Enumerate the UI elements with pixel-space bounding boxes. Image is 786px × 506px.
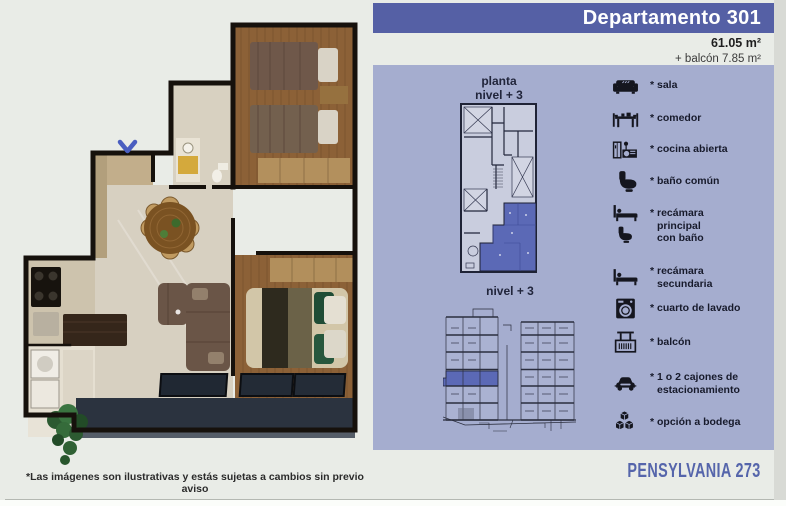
legend-item: * comedor xyxy=(609,106,701,131)
legend-item-label: * cocina abierta xyxy=(650,143,728,156)
legend-item: * cuarto de lavado xyxy=(609,296,740,321)
right-margin xyxy=(774,0,786,506)
legend-item-label: * balcón xyxy=(650,336,691,349)
legend-item-label: * 1 o 2 cajones de estacionamiento xyxy=(650,371,740,396)
floor-plan-label: planta nivel + 3 xyxy=(419,74,579,103)
bed-with-bath-icon xyxy=(609,203,641,249)
building-floor-plan-thumbnail xyxy=(460,103,537,273)
page-title: Departamento 301 xyxy=(583,7,761,30)
legend-item-label: * recámara secundaria xyxy=(650,265,712,290)
info-panel: planta nivel + 3 nivel + 3 xyxy=(373,65,774,450)
legend-item: * balcón xyxy=(609,330,691,355)
area-block: 61.05 m² + balcón 7.85 m² xyxy=(373,36,774,66)
legend-item-label: * opción a bodega xyxy=(650,416,740,429)
header-bar: Departamento 301 xyxy=(373,3,774,33)
storage-boxes-icon xyxy=(609,410,641,435)
balcony-area: + balcón 7.85 m² xyxy=(373,52,761,66)
bottom-margin xyxy=(0,500,786,506)
legend-item: * sala xyxy=(609,73,677,98)
sofa-icon xyxy=(609,73,641,98)
legend-item: * recámara principal con baño xyxy=(609,203,704,249)
dining-table-icon xyxy=(609,106,641,131)
apartment-floor-plan-render xyxy=(18,20,360,465)
legend-item-label: * sala xyxy=(650,79,677,92)
legend-item-label: * cuarto de lavado xyxy=(650,302,740,315)
disclaimer-text: *Las imágenes son ilustrativas y estás s… xyxy=(20,471,370,495)
bed-icon xyxy=(609,265,641,290)
legend-item: * cocina abierta xyxy=(609,137,728,162)
legend-list: * sala * comedor * cocina abierta * baño… xyxy=(609,65,774,450)
legend-item: * recámara secundaria xyxy=(609,265,712,290)
legend-item: * opción a bodega xyxy=(609,410,740,435)
legend-item: * baño común xyxy=(609,169,719,194)
legend-item-label: * comedor xyxy=(650,112,701,125)
toilet-icon xyxy=(609,169,641,194)
washing-machine-icon xyxy=(609,296,641,321)
legend-item: * 1 o 2 cajones de estacionamiento xyxy=(609,371,740,396)
unit-area: 61.05 m² xyxy=(373,36,761,52)
brochure-page: Departamento 301 61.05 m² + balcón 7.85 … xyxy=(0,0,786,506)
building-section-diagram xyxy=(443,305,576,438)
brand-logo: PENSYLVANIA 273 xyxy=(622,460,766,483)
section-label: nivel + 3 xyxy=(430,284,590,298)
balcony-icon xyxy=(609,330,641,355)
legend-item-label: * baño común xyxy=(650,175,719,188)
car-icon xyxy=(609,371,641,396)
entry-arrow-icon xyxy=(120,142,135,151)
legend-item-label: * recámara principal con baño xyxy=(650,207,704,245)
kitchen-icon xyxy=(609,137,641,162)
